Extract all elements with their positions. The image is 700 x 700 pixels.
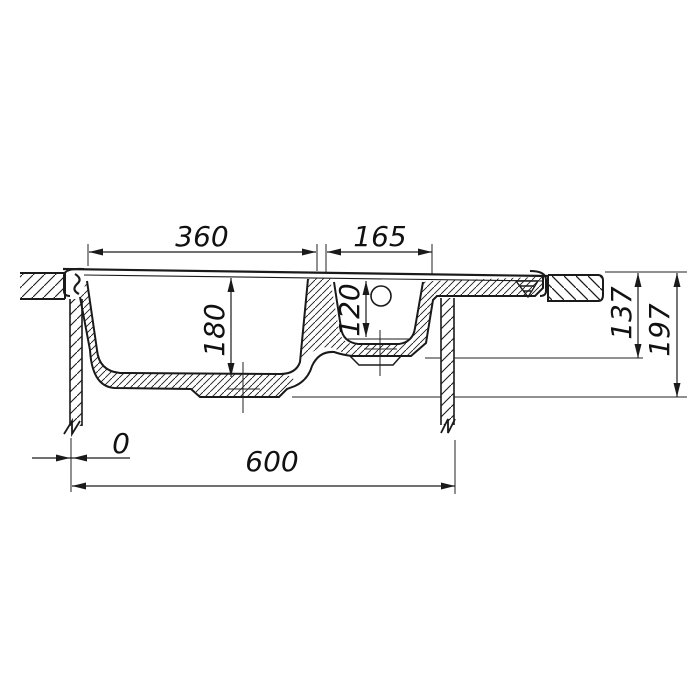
dim-label-main-bowl-depth: 180 bbox=[198, 303, 231, 356]
dim-label-small-bowl-width: 165 bbox=[353, 220, 406, 253]
dim-label-small-bowl-depth: 120 bbox=[333, 283, 366, 336]
dim-label-height-197: 197 bbox=[643, 303, 676, 357]
dim-label-overall-width: 600 bbox=[245, 445, 298, 478]
dim-label-edge-offset: 0 bbox=[112, 427, 130, 460]
cabinet-panel-right bbox=[441, 298, 455, 433]
countertop-left-section bbox=[20, 273, 65, 299]
dim-label-main-bowl-width: 360 bbox=[175, 220, 228, 253]
sink-section-drawing: 360 165 180 120 137 197 0 600 bbox=[0, 0, 700, 700]
countertop-right-section bbox=[548, 275, 603, 301]
dim-label-height-137: 137 bbox=[605, 286, 638, 340]
technical-drawing-canvas: 360 165 180 120 137 197 0 600 bbox=[0, 0, 700, 700]
